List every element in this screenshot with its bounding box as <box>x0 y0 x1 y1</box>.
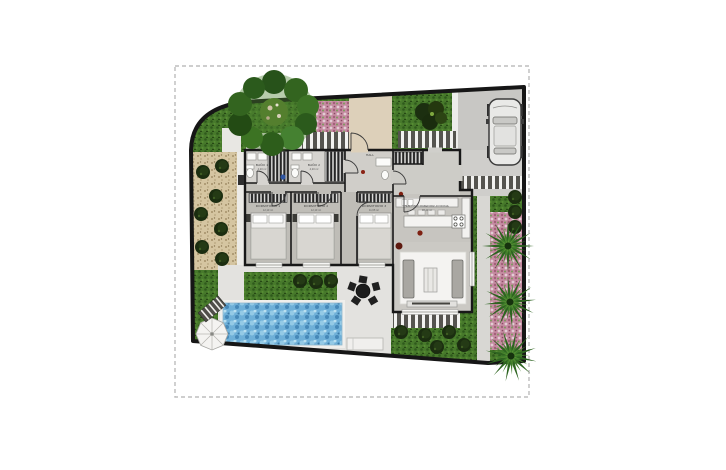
car-roof <box>494 126 516 146</box>
south-strip-bushes <box>293 274 338 289</box>
svg-text:38,40 m²: 38,40 m² <box>422 208 432 212</box>
label-living-kitchen: SALÓN-COMEDOR-COCINA <box>405 203 450 208</box>
lawn-south-strip <box>244 272 337 300</box>
tv-icon <box>412 303 450 305</box>
sun-lounger-flat <box>347 338 383 350</box>
windshield <box>493 117 517 124</box>
sofa-left <box>403 260 414 298</box>
living-room-furniture <box>396 243 467 308</box>
wardrobe-1 <box>249 194 287 203</box>
decor-plant-dark <box>396 243 403 250</box>
person-figure <box>280 174 285 179</box>
path-east <box>477 196 490 362</box>
decor-red-hall <box>361 170 365 174</box>
wardrobe-3 <box>359 194 391 203</box>
parked-car <box>486 99 524 165</box>
coffee-table <box>424 268 437 292</box>
bed-2 <box>293 213 339 259</box>
east-bushes <box>508 190 522 234</box>
label-bedroom-3: DORMITORIO 3 <box>362 204 387 208</box>
swimming-pool <box>220 300 345 348</box>
kitchen-island <box>404 216 454 227</box>
label-hall: HALL <box>366 153 374 157</box>
rear-window <box>494 148 516 154</box>
svg-text:4,20 m²: 4,20 m² <box>258 167 267 171</box>
floor-plan-svg: BAÑO 1 4,20 m² BAÑO 2 4,20 m² DORMITORIO… <box>0 0 726 470</box>
parasol <box>196 318 228 350</box>
ac-unit <box>238 175 244 185</box>
bed-1 <box>246 213 291 259</box>
label-bath-2: BAÑO 2 <box>308 162 320 167</box>
decor-plant-red-2 <box>417 230 422 235</box>
stove-icon <box>452 215 465 228</box>
svg-text:12,10 m²: 12,10 m² <box>263 208 273 212</box>
svg-text:12,10 m²: 12,10 m² <box>311 208 321 212</box>
sofa-right <box>452 260 463 298</box>
bed-3 <box>358 213 391 259</box>
svg-text:11,65 m²: 11,65 m² <box>369 208 379 212</box>
flower-bed-top <box>316 101 349 132</box>
floor-plan-page: BAÑO 1 4,20 m² BAÑO 2 4,20 m² DORMITORIO… <box>0 0 726 470</box>
label-bath-1: BAÑO 1 <box>256 162 268 167</box>
entry-plaza <box>349 96 392 152</box>
svg-text:4,20 m²: 4,20 m² <box>310 167 319 171</box>
label-bedroom-1: DORMITORIO 1 <box>256 204 281 208</box>
label-bedroom-2: DORMITORIO 2 <box>304 204 329 208</box>
closet <box>394 152 422 164</box>
shower-2 <box>325 152 344 182</box>
walkway-right <box>398 131 456 148</box>
